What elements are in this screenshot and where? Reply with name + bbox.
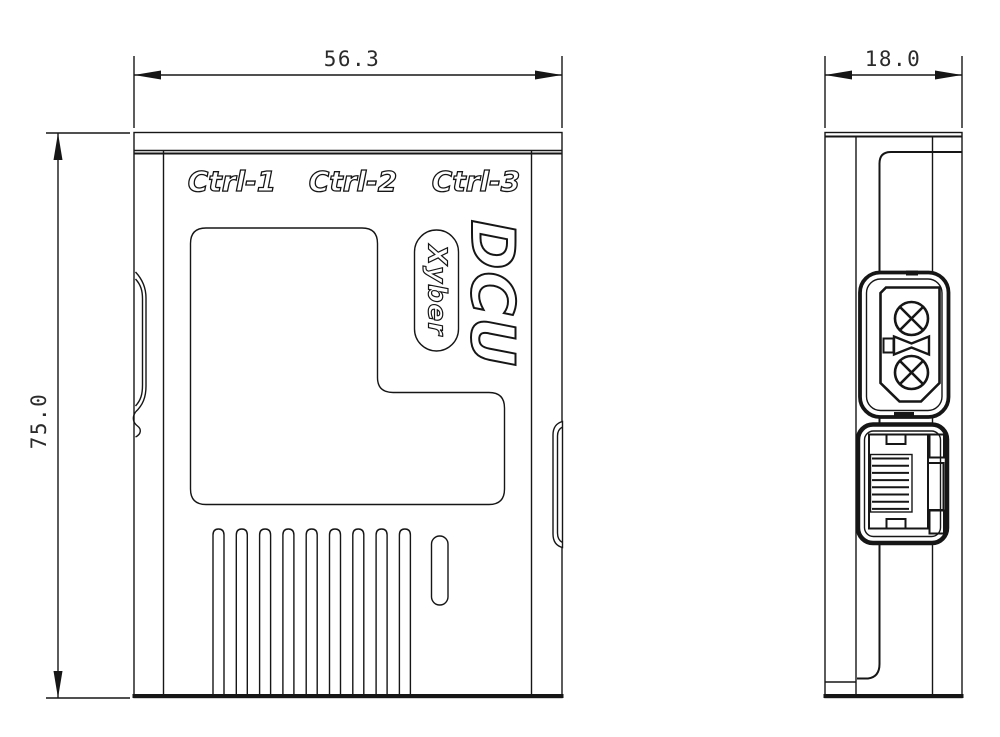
arrowhead-right [535, 71, 562, 80]
vent-slot [353, 529, 364, 695]
dimension-width: 56.3 [134, 47, 562, 128]
dimension-depth: 18.0 [825, 47, 962, 128]
status-led-slot [432, 536, 449, 605]
vent-slot [306, 529, 317, 695]
vent-slots [213, 529, 410, 695]
power-connector-xt30 [860, 271, 949, 418]
ethernet-connector-rj45 [858, 425, 947, 544]
vent-slot [260, 529, 271, 695]
brand-text: Xyber [421, 243, 451, 337]
dcu-enclosure-drawing: Ctrl-1 Ctrl-2 Ctrl-3 DCU Xyber [0, 0, 1000, 737]
arrowhead-bottom [54, 671, 63, 698]
depth-dimension-value: 18.0 [865, 47, 922, 71]
vent-slot [399, 529, 410, 695]
ctrl3-label: Ctrl-3 [432, 165, 520, 198]
width-dimension-value: 56.3 [324, 47, 381, 71]
vent-slot [283, 529, 294, 695]
left-snap-clip [133, 272, 146, 437]
ctrl2-label: Ctrl-2 [309, 165, 397, 198]
vent-slot [236, 529, 247, 695]
arrowhead-left [134, 71, 161, 80]
ctrl1-label: Ctrl-1 [188, 165, 276, 198]
brand-badge: Xyber [415, 230, 459, 351]
side-view [824, 133, 964, 698]
product-logo-text: DCU [457, 220, 527, 369]
front-view: Ctrl-1 Ctrl-2 Ctrl-3 DCU Xyber [133, 133, 564, 698]
power-connector-top-notch [906, 271, 918, 276]
technical-drawing-page: Ctrl-1 Ctrl-2 Ctrl-3 DCU Xyber [0, 0, 1000, 737]
power-connector-bottom-notch [894, 412, 914, 417]
port-labels: Ctrl-1 Ctrl-2 Ctrl-3 [188, 165, 520, 198]
vent-slot [330, 529, 341, 695]
dimension-height: 75.0 [27, 133, 130, 698]
arrowhead-top [54, 133, 63, 160]
front-body-outline [134, 133, 562, 698]
arrowhead-right [935, 71, 962, 80]
vent-slot [213, 529, 224, 695]
vent-slot [376, 529, 387, 695]
rj45-shell [858, 425, 947, 544]
height-dimension-value: 75.0 [27, 393, 51, 450]
right-snap-clip [553, 422, 563, 548]
arrowhead-left [825, 71, 852, 80]
